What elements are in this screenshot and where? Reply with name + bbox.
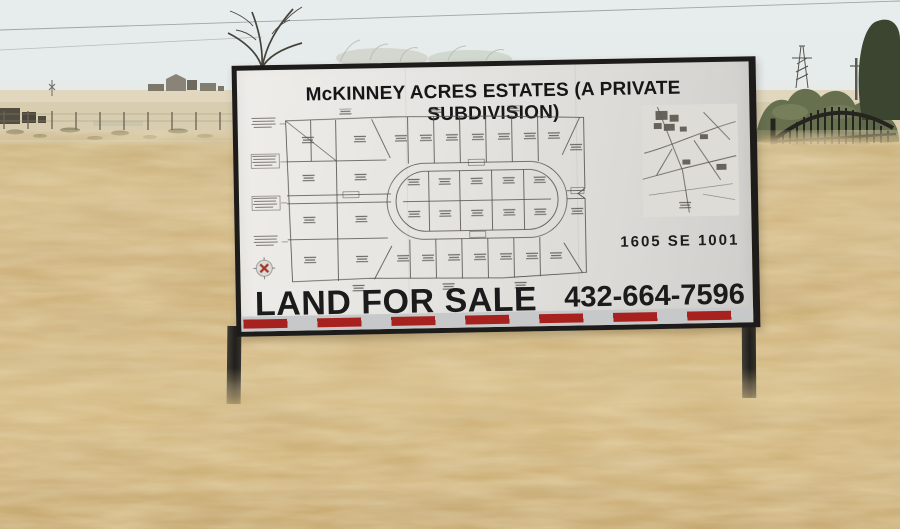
grass-foreground xyxy=(0,368,900,529)
bare-tree-branches xyxy=(228,7,302,68)
address-text: 1605 SE 1001 xyxy=(614,231,746,250)
plat-margin-notes xyxy=(251,118,288,246)
plat-lot-lines xyxy=(286,113,587,281)
power-line xyxy=(0,1,900,50)
sign-board: McKINNEY ACRES ESTATES (A PRIVATE SUBDIV… xyxy=(232,56,761,337)
photo-scene: McKINNEY ACRES ESTATES (A PRIVATE SUBDIV… xyxy=(0,0,900,529)
plat-map xyxy=(249,104,592,295)
transmission-tower xyxy=(792,46,812,88)
tree-silhouette xyxy=(859,20,900,120)
plat-lot-labels xyxy=(301,104,584,291)
location-inset-map xyxy=(641,104,739,218)
compass-rose-icon xyxy=(253,257,275,279)
